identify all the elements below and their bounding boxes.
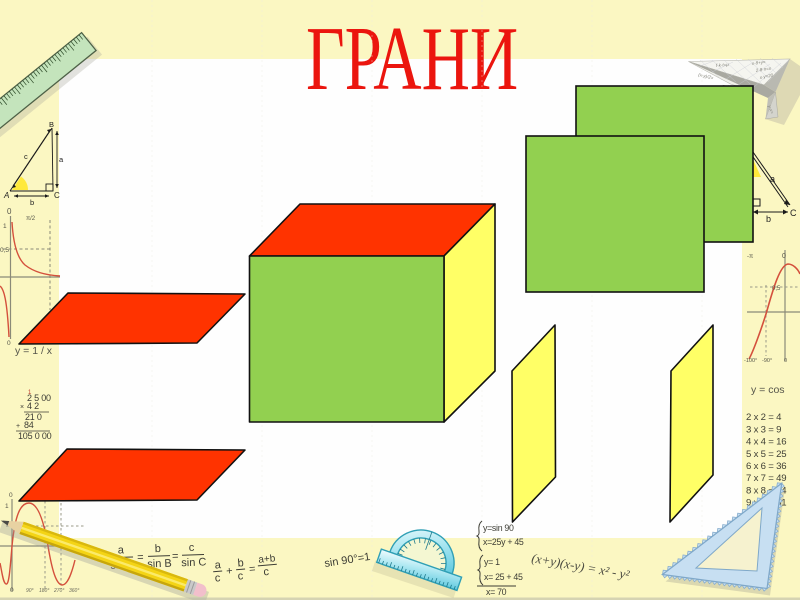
svg-text:c: c	[214, 572, 221, 584]
svg-text:c: c	[263, 566, 270, 578]
svg-text:a: a	[118, 544, 125, 556]
svg-text:sin C: sin C	[181, 556, 207, 569]
svg-text:-π: -π	[747, 254, 753, 260]
svg-text:b: b	[766, 214, 771, 224]
svg-text:y=sin 90: y=sin 90	[483, 523, 514, 533]
svg-text:x=25y + 45: x=25y + 45	[483, 537, 524, 547]
svg-text:sin 90°=1: sin 90°=1	[324, 551, 372, 570]
svg-text:x= 70: x= 70	[486, 587, 507, 597]
svg-text:4 x 4 = 16: 4 x 4 = 16	[746, 437, 786, 448]
svg-text:0: 0	[784, 358, 787, 364]
svg-text:7 x 7 = 49: 7 x 7 = 49	[746, 473, 786, 484]
svg-text:c: c	[24, 152, 28, 161]
svg-text:0: 0	[10, 587, 14, 594]
svg-text:a: a	[59, 155, 64, 164]
svg-text:1: 1	[3, 223, 7, 230]
svg-text:y = cos: y = cos	[751, 384, 785, 396]
svg-text:6 x 6 = 36: 6 x 6 = 36	[746, 461, 786, 472]
svg-text:a: a	[214, 559, 222, 572]
svg-text:0,5: 0,5	[772, 286, 781, 292]
svg-text:0: 0	[782, 253, 786, 260]
svg-text:0: 0	[9, 492, 13, 499]
svg-text:+: +	[226, 565, 233, 578]
svg-text:B: B	[49, 120, 54, 129]
svg-text:3 x 3 = 9: 3 x 3 = 9	[746, 425, 781, 436]
svg-text:y= 1: y= 1	[484, 557, 500, 567]
svg-text:=: =	[249, 563, 256, 576]
svg-text:1: 1	[5, 503, 9, 510]
svg-text:x= 25 + 45: x= 25 + 45	[484, 572, 523, 582]
svg-text:A: A	[3, 191, 9, 200]
svg-text:4 2: 4 2	[27, 401, 39, 411]
svg-text:90°: 90°	[26, 588, 34, 594]
svg-text:84: 84	[24, 420, 34, 430]
svg-text:(x+y)(x-y) = x² - y²: (x+y)(x-y) = x² - y²	[530, 550, 631, 582]
svg-text:b: b	[155, 543, 162, 555]
svg-text:a+b: a+b	[258, 553, 276, 565]
svg-text:105 0 00: 105 0 00	[18, 431, 52, 441]
svg-text:=: =	[172, 550, 179, 562]
svg-text:0: 0	[7, 340, 11, 347]
svg-text:270°: 270°	[53, 588, 64, 594]
svg-text:-100°: -100°	[744, 358, 757, 364]
svg-text:360°: 360°	[69, 588, 79, 594]
svg-text:a: a	[770, 174, 775, 184]
svg-text:-90°: -90°	[762, 358, 772, 364]
svg-text:y = 1 / x: y = 1 / x	[15, 345, 53, 357]
svg-text:0: 0	[7, 207, 12, 216]
svg-text:×: ×	[20, 404, 24, 411]
svg-text:+: +	[16, 423, 20, 430]
svg-text:b: b	[30, 198, 34, 207]
svg-text:0,5: 0,5	[0, 247, 9, 254]
svg-text:π/2: π/2	[26, 216, 36, 222]
svg-text:c: c	[189, 542, 195, 554]
svg-text:b: b	[237, 557, 244, 569]
svg-text:180°: 180°	[39, 588, 49, 594]
svg-text:C: C	[54, 191, 60, 200]
svg-text:5 x 5 = 25: 5 x 5 = 25	[746, 449, 786, 460]
svg-text:2 x 2 = 4: 2 x 2 = 4	[746, 412, 782, 423]
svg-text:C: C	[790, 208, 797, 218]
svg-text:c: c	[237, 570, 244, 582]
